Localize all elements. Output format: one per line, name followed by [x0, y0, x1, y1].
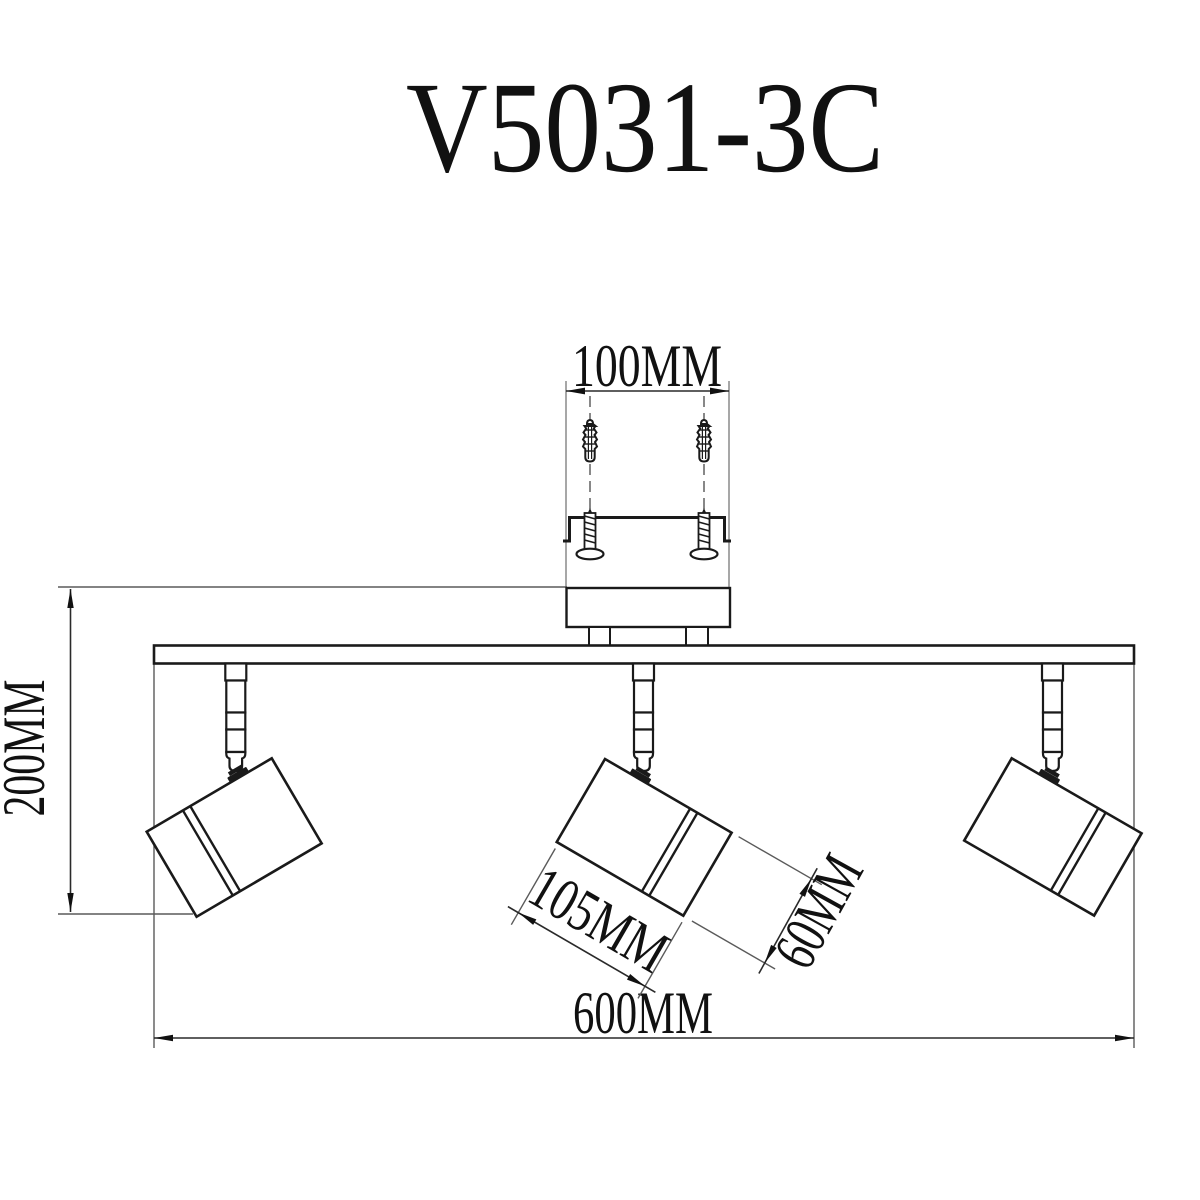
arrowhead: [154, 1035, 173, 1041]
dim-head-width-label: 60MM: [761, 844, 876, 979]
canopy-foot-right: [686, 627, 708, 646]
stem-right: [1042, 664, 1063, 772]
arrowhead: [67, 589, 73, 608]
spotlight-head-left: [143, 751, 322, 916]
arrowhead: [67, 893, 73, 912]
mounting-bar: [154, 646, 1134, 664]
technical-drawing-page: V5031-3C 100MM: [0, 0, 1200, 1200]
head-body: [147, 758, 322, 916]
dim-drop-height-label: 200MM: [0, 680, 57, 817]
wall-anchor-left: [583, 420, 597, 462]
dim-hole-spacing-label: 100MM: [572, 333, 722, 399]
dim-bar-length: 600MM: [154, 980, 1134, 1046]
product-code-title: V5031-3C: [406, 56, 884, 200]
arrowhead: [1115, 1035, 1134, 1041]
canopy-foot-left: [589, 627, 610, 646]
wall-anchor-right: [697, 420, 711, 462]
head-body: [964, 758, 1141, 915]
screw-right: [691, 508, 718, 559]
stem-left: [225, 664, 246, 772]
screw-left: [577, 508, 604, 559]
spotlight-head-right: [964, 751, 1145, 915]
fixture-dimension-drawing: V5031-3C 100MM: [0, 0, 1200, 1200]
stem-middle: [633, 664, 654, 772]
dim-drop-height: 200MM: [0, 589, 74, 912]
dim-head-width: 60MM: [692, 837, 876, 979]
ceiling-canopy: [567, 588, 731, 627]
